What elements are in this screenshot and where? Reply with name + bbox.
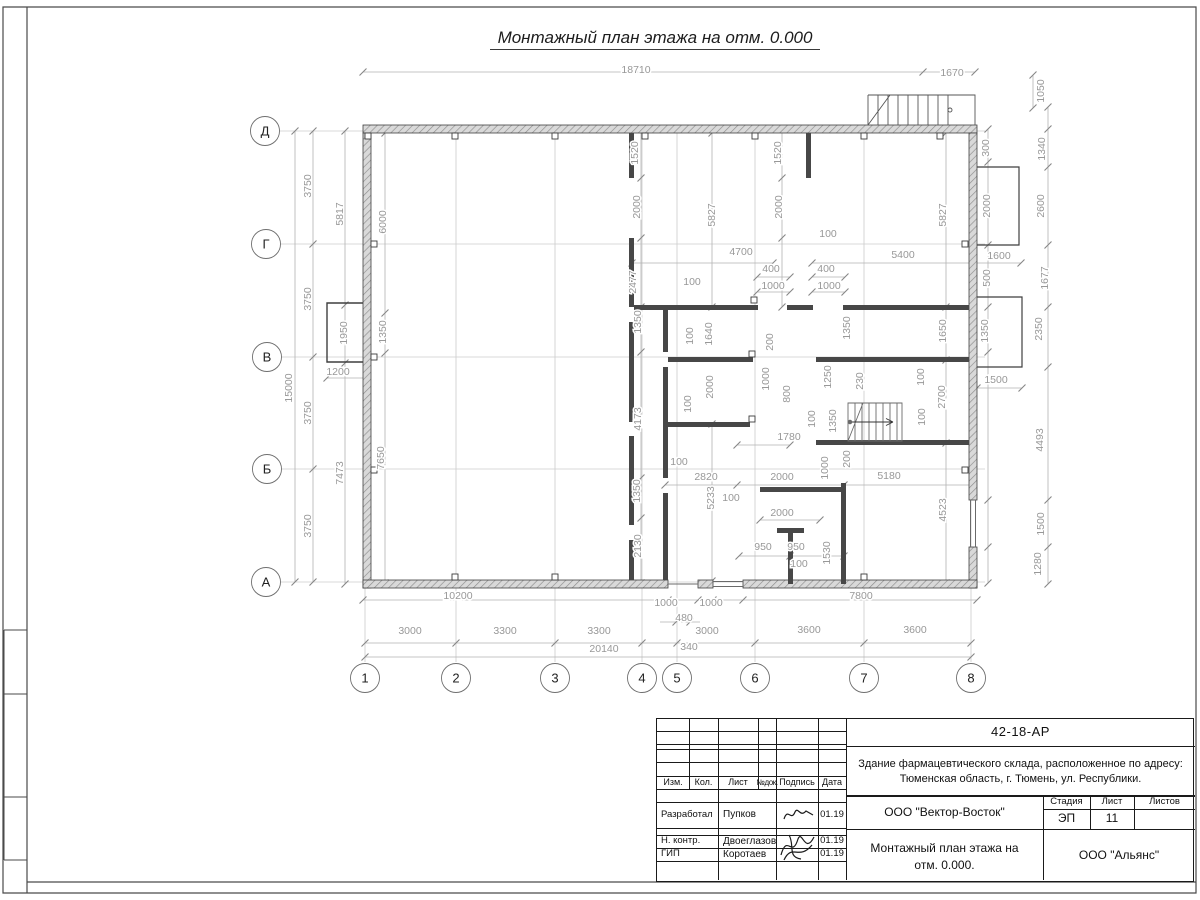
drawing-title-line1: Монтажный план этажа на (846, 841, 1043, 857)
col-ndok: №док. (757, 776, 777, 789)
dim-label: 1640 (703, 322, 715, 346)
dim-label: 2000 (631, 195, 643, 219)
dim-label: 100 (684, 327, 696, 345)
project-name-line1: Здание фармацевтического склада, располо… (846, 756, 1195, 772)
dim-label: 2130 (632, 534, 644, 558)
mounting-square (861, 574, 867, 580)
titleblock-line (1043, 796, 1044, 880)
titleblock-line (818, 719, 819, 880)
dim-label: 1350 (979, 319, 991, 343)
mounting-square (749, 416, 755, 422)
dim-label: 4700 (729, 246, 753, 258)
dim-label: 1350 (841, 316, 853, 340)
dim-label: 230 (854, 372, 866, 390)
interior-walls (629, 133, 969, 584)
dim-label: 3750 (302, 287, 314, 311)
dim-label: 1350 (827, 409, 839, 433)
dim-label: 1350 (632, 310, 644, 334)
row-date-2: 01.19 (818, 848, 846, 861)
org-name: ООО "Вектор-Восток" (846, 796, 1043, 829)
dim-label: 5400 (891, 249, 915, 261)
axis-label: В (263, 350, 272, 365)
sheets-value (1134, 809, 1195, 829)
row-role-2: ГИП (658, 848, 720, 861)
dim-label: 1280 (1032, 552, 1044, 576)
row-date-1: 01.19 (818, 835, 846, 848)
axis-label: 7 (860, 671, 867, 686)
mounting-square (937, 133, 943, 139)
row-date-0: 01.19 (818, 802, 846, 828)
exterior-walls (363, 125, 977, 588)
dim-label: 1350 (631, 479, 643, 503)
dim-label: 3300 (493, 625, 517, 637)
dim-label: 2000 (704, 375, 716, 399)
dim-label: 18710 (621, 64, 650, 76)
stage-value: ЭП (1043, 809, 1090, 829)
dim-label: 3600 (797, 624, 821, 636)
col-izm: Изм. (657, 776, 689, 789)
titleblock-line (846, 746, 1195, 747)
dim-label: 480 (675, 612, 693, 624)
mounting-square (752, 133, 758, 139)
titleblock-line (1043, 809, 1195, 810)
dim-label: 1650 (937, 319, 949, 343)
mounting-square (452, 574, 458, 580)
axis-label: 6 (751, 671, 758, 686)
dim-label: 10200 (443, 590, 472, 602)
dim-label: 1000 (760, 367, 772, 391)
side-stamp-boxes (4, 630, 27, 860)
titleblock-line (846, 829, 1195, 830)
dim-label: 300 (980, 139, 992, 157)
exterior-stair (868, 95, 975, 125)
axis-label: Б (263, 462, 272, 477)
dim-label: 2000 (981, 194, 993, 218)
title-block: 42-18-АР Здание фармацевтического склада… (656, 718, 1194, 882)
axis-label: 1 (361, 671, 368, 686)
dim-label: 3300 (587, 625, 611, 637)
mounting-square (552, 574, 558, 580)
drawing-sheet: 1871016701050375037503750375015000581719… (0, 0, 1200, 900)
dim-label: 1340 (1036, 137, 1048, 161)
dim-label: 4173 (632, 407, 644, 431)
dim-label: 400 (762, 263, 780, 275)
dim-label: 2350 (1033, 317, 1045, 341)
drawing-view-title-text: Монтажный план этажа на отм. 0.000 (490, 28, 821, 50)
company-name: ООО "Альянс" (1043, 829, 1195, 883)
dim-label: 2477 (627, 270, 639, 294)
dim-label: 2000 (770, 507, 794, 519)
dim-label: 5827 (706, 203, 718, 227)
mounting-square (962, 241, 968, 247)
dim-label: 100 (916, 408, 928, 426)
dim-label: 1677 (1039, 266, 1051, 290)
sheet-label: Лист (1090, 796, 1134, 809)
axis-label: 8 (967, 671, 974, 686)
row-name-0: Пупков (720, 802, 778, 828)
axis-label: А (262, 575, 271, 590)
col-podpis: Подпись (776, 776, 818, 789)
dim-label: 5233 (705, 486, 717, 510)
dim-label: 20140 (589, 643, 618, 655)
stage-label: Стадия (1043, 796, 1090, 809)
titleblock-line (718, 719, 719, 880)
dim-label: 1250 (822, 365, 834, 389)
dim-label: 100 (806, 410, 818, 428)
row-name-1: Двоеглазов (720, 835, 778, 848)
project-name-line2: Тюменская область, г. Тюмень, ул. Респуб… (846, 771, 1195, 787)
dim-label: 1780 (777, 431, 801, 443)
row-role-1: Н. контр. (658, 835, 720, 848)
titleblock-line (689, 719, 690, 789)
titleblock-line (776, 719, 777, 880)
mounting-square (452, 133, 458, 139)
dim-label: 15000 (283, 373, 295, 402)
axis-markers: ДГВБА12345678 (251, 117, 986, 693)
col-kol: Кол. (689, 776, 718, 789)
dim-label: 1000 (817, 280, 841, 292)
dim-label: 100 (915, 368, 927, 386)
dim-label: 1670 (940, 67, 964, 79)
dim-label: 1600 (987, 250, 1011, 262)
axis-label: 5 (673, 671, 680, 686)
dimension-ticks (292, 69, 1052, 661)
mounting-square (365, 133, 371, 139)
doc-number: 42-18-АР (846, 719, 1195, 746)
col-data: Дата (818, 776, 846, 789)
dim-label: 3000 (398, 625, 422, 637)
dim-label: 5827 (937, 203, 949, 227)
dim-label: 3600 (903, 624, 927, 636)
titleblock-line (1090, 796, 1091, 829)
dim-label: 7800 (849, 590, 873, 602)
mounting-square (749, 351, 755, 357)
dim-label: 100 (683, 276, 701, 288)
axis-label: 3 (551, 671, 558, 686)
dim-label: 400 (817, 263, 835, 275)
dim-label: 5180 (877, 470, 901, 482)
sheets-label: Листов (1134, 796, 1195, 809)
dim-label: 1500 (1035, 512, 1047, 536)
row-name-2: Коротаев (720, 848, 778, 861)
row-role-0: Разработал (658, 802, 720, 828)
dim-label: 2000 (773, 195, 785, 219)
dim-label: 2000 (770, 471, 794, 483)
dim-label: 100 (682, 395, 694, 413)
dim-label: 4523 (937, 498, 949, 522)
dim-label: 200 (841, 450, 853, 468)
dim-label: 1000 (699, 597, 723, 609)
dim-label: 3000 (695, 625, 719, 637)
drawing-view-title: Монтажный план этажа на отм. 0.000 (430, 28, 880, 48)
interior-stair (848, 403, 902, 441)
dim-label: 2820 (694, 471, 718, 483)
mounting-square (751, 297, 757, 303)
dim-label: 1520 (629, 141, 641, 165)
axis-label: 2 (452, 671, 459, 686)
dim-label: 100 (670, 456, 688, 468)
dim-label: 1500 (984, 374, 1008, 386)
axis-label: 4 (638, 671, 645, 686)
dim-label: 1950 (338, 321, 350, 345)
titleblock-line (846, 719, 847, 880)
dim-label: 1200 (326, 366, 350, 378)
dim-label: 1350 (377, 320, 389, 344)
dim-label: 100 (819, 228, 837, 240)
dim-label: 3750 (302, 174, 314, 198)
mounting-square (642, 133, 648, 139)
dim-label: 1520 (772, 141, 784, 165)
dim-label: 4493 (1034, 428, 1046, 452)
dim-label: 1000 (819, 456, 831, 480)
dim-label: 2600 (1035, 194, 1047, 218)
dim-label: 340 (680, 641, 698, 653)
mounting-square (552, 133, 558, 139)
dim-label: 100 (790, 558, 808, 570)
axis-label: Д (261, 124, 270, 139)
mounting-square (371, 241, 377, 247)
dim-label: 1000 (761, 280, 785, 292)
sheet-value: 11 (1090, 809, 1134, 829)
dim-label: 200 (764, 333, 776, 351)
dim-label: 1050 (1035, 79, 1047, 103)
titleblock-line (758, 719, 759, 789)
titleblock-line (846, 795, 1195, 797)
dim-label: 800 (781, 385, 793, 403)
dim-label: 1000 (654, 597, 678, 609)
dim-label: 7473 (334, 461, 346, 485)
col-list: Лист (718, 776, 758, 789)
mounting-square (861, 133, 867, 139)
titleblock-line (1134, 796, 1135, 829)
axis-label: Г (262, 237, 269, 252)
dim-label: 7650 (375, 446, 387, 470)
drawing-title-line2: отм. 0.000. (846, 858, 1043, 874)
dim-label: 6000 (377, 210, 389, 234)
dim-label: 3750 (302, 514, 314, 538)
mounting-square (962, 467, 968, 473)
mounting-square (371, 354, 377, 360)
dim-label: 5817 (334, 202, 346, 226)
dim-label: 950 (787, 541, 805, 553)
dim-label: 2700 (936, 385, 948, 409)
dim-label: 500 (981, 269, 993, 287)
signature-developer (780, 805, 816, 825)
dimension-lines (295, 72, 1048, 657)
dim-label: 100 (722, 492, 740, 504)
dim-label: 950 (754, 541, 772, 553)
dim-label: 3750 (302, 401, 314, 425)
dim-label: 1530 (821, 541, 833, 565)
